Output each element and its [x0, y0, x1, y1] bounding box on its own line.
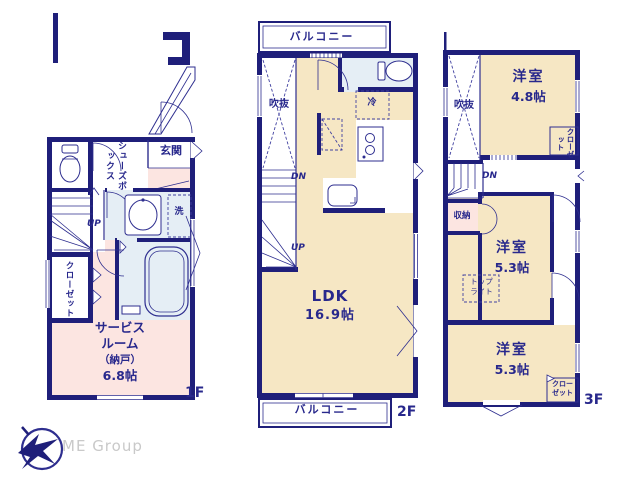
- stairs-dn-label-2f: DN: [291, 172, 306, 183]
- room48-window: [575, 80, 580, 113]
- laundry-label: 洗: [171, 207, 187, 218]
- corridor: [552, 195, 578, 325]
- bottom-window: [97, 395, 143, 400]
- site-wall-bracket: [163, 32, 190, 65]
- corridor-window: [575, 230, 580, 253]
- toilet-icon: [60, 145, 80, 182]
- room53-window: [575, 343, 580, 373]
- fridge-label: 冷: [364, 98, 380, 109]
- closet-top-label-3f: クローゼット: [553, 128, 575, 158]
- floor2-label: 2F: [397, 404, 416, 422]
- wall-hatch: [490, 155, 517, 160]
- ldk-label: LDK 16.9帖: [285, 287, 375, 325]
- balcony-bottom-label: バルコニー: [272, 403, 382, 417]
- entrance-label: 玄関: [146, 144, 196, 158]
- bay-window-bottom: [480, 400, 522, 416]
- bird-logo-icon: [18, 427, 62, 469]
- logo-text: ME Group: [62, 437, 152, 456]
- void-label-3f: 吹抜: [448, 100, 480, 113]
- void-label-2f: 吹抜: [262, 99, 296, 112]
- hall: [483, 160, 578, 195]
- room-53-btm-label: 洋室 5.3帖: [478, 341, 546, 379]
- toplight-label: トップ ライト: [463, 277, 500, 297]
- floor1-label: 1F: [185, 385, 204, 403]
- floorplan-canvas: ME Group 玄関 シューズボックス 洗 UP クローゼット サービス ルー…: [0, 0, 640, 480]
- stairs-up-label-2f: UP: [291, 243, 305, 254]
- closet-bottom-label-3f: クロー ゼット: [547, 380, 578, 398]
- wall-stub: [444, 32, 447, 52]
- stairs-up-label-1f: UP: [87, 219, 101, 230]
- storage-label: 収納: [446, 211, 478, 222]
- floor2-plan: [250, 15, 430, 435]
- stove-icon: [358, 127, 383, 161]
- site-wall-bar: [53, 13, 58, 63]
- room-48-label: 洋室 4.8帖: [486, 68, 571, 106]
- shoe-box-label: シューズボックス: [103, 141, 127, 191]
- room-53-mid-label: 洋室 5.3帖: [478, 239, 546, 277]
- entrance-porch: [149, 67, 195, 134]
- toilet-icon: [378, 61, 412, 81]
- floor3-label: 3F: [584, 392, 603, 410]
- balcony-top-label: バルコニー: [272, 30, 372, 44]
- hall-door-mark: [575, 169, 584, 183]
- side-window: [414, 233, 419, 279]
- bottom-window: [295, 393, 353, 398]
- top-wall-hatch: [310, 54, 342, 58]
- service-room-label: サービス ルーム （納戸） 6.8帖: [60, 320, 180, 384]
- stairs-dn-label-3f: DN: [482, 171, 497, 182]
- sink-icon: [328, 185, 357, 206]
- closet-window: [45, 260, 50, 308]
- kitchen-door-mark: [414, 163, 424, 179]
- vanity-sink-icon: [125, 195, 161, 235]
- closet-label-1f: クローゼット: [58, 256, 74, 322]
